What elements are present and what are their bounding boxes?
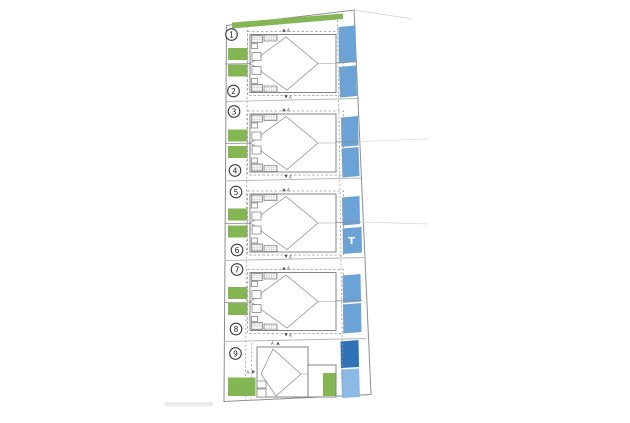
plot-number-5: 5 — [234, 188, 239, 197]
duplex-unit-plots-3-4 — [248, 108, 344, 180]
duplex-unit-plots-1-2 — [248, 28, 344, 100]
blue-zone-plot-8 — [343, 303, 362, 334]
green-area-plot-3 — [228, 130, 248, 142]
extension-line — [359, 139, 428, 142]
plot-number-1: 1 — [229, 30, 234, 39]
section-marker-label: A — [247, 370, 250, 375]
section-marker-label: A — [271, 341, 274, 346]
green-area-plot-9-left — [228, 378, 256, 397]
green-area-plot-7 — [228, 287, 248, 299]
blue-zone-plot-7 — [343, 274, 362, 303]
duplex-unit-plots-7-8 — [248, 266, 344, 338]
plot-number-7: 7 — [235, 265, 240, 274]
blue-zone-plot-2 — [339, 66, 357, 98]
green-area-plot-1 — [228, 48, 248, 60]
blue-zone-plot-1 — [339, 26, 357, 64]
blue-zone-plot-9-dark — [341, 340, 360, 368]
extension-line — [361, 222, 428, 224]
watermark — [165, 402, 213, 407]
green-area-plot-5 — [228, 209, 248, 221]
green-area-plot-2 — [228, 65, 248, 77]
blue-zone-plot-5 — [342, 196, 360, 226]
plot-number-4: 4 — [233, 166, 238, 175]
site-plan-page: A A — [0, 0, 630, 423]
entry-box — [257, 389, 266, 397]
entry-box — [257, 381, 266, 388]
plot-number-6: 6 — [235, 246, 240, 255]
blue-zone-plot-9-light — [341, 369, 360, 399]
site-plan-drawing: A A — [0, 0, 630, 423]
plot-number-2: 2 — [231, 87, 236, 96]
green-area-plot-9-right — [323, 373, 336, 396]
plot-number-8: 8 — [234, 325, 239, 334]
green-area-plot-6 — [228, 226, 248, 238]
duplex-unit-plots-5-6 — [248, 188, 344, 260]
plot-number-3: 3 — [232, 107, 237, 116]
adjacent-parcel-line — [354, 10, 410, 19]
green-area-plot-8 — [228, 303, 248, 315]
transformer-label: T — [348, 236, 355, 247]
blue-zone-plot-4 — [342, 147, 360, 178]
green-area-plot-4 — [228, 146, 248, 158]
plot-number-9: 9 — [233, 349, 238, 358]
